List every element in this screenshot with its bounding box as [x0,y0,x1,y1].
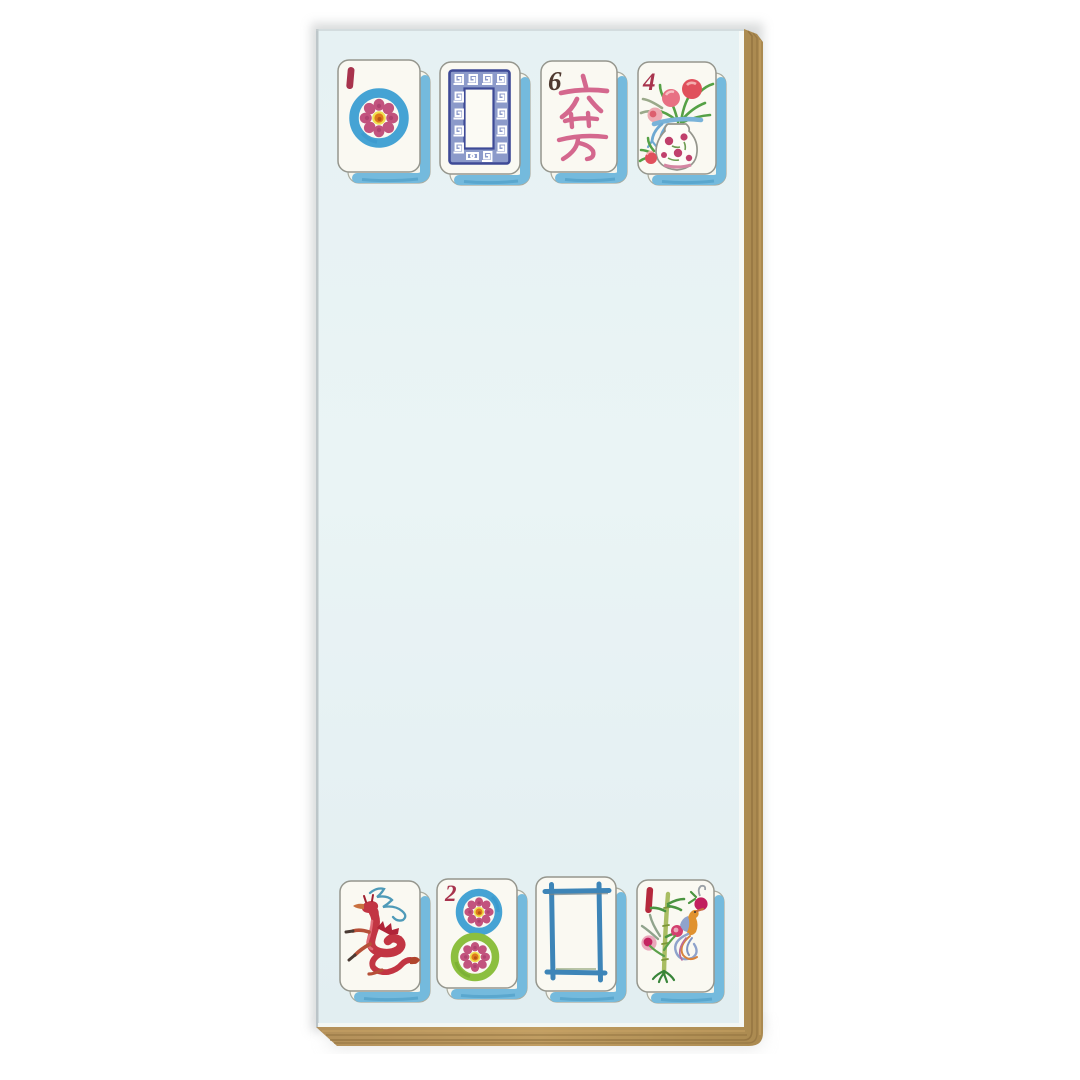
svg-text:4: 4 [642,69,656,96]
svg-text:2: 2 [444,881,457,906]
